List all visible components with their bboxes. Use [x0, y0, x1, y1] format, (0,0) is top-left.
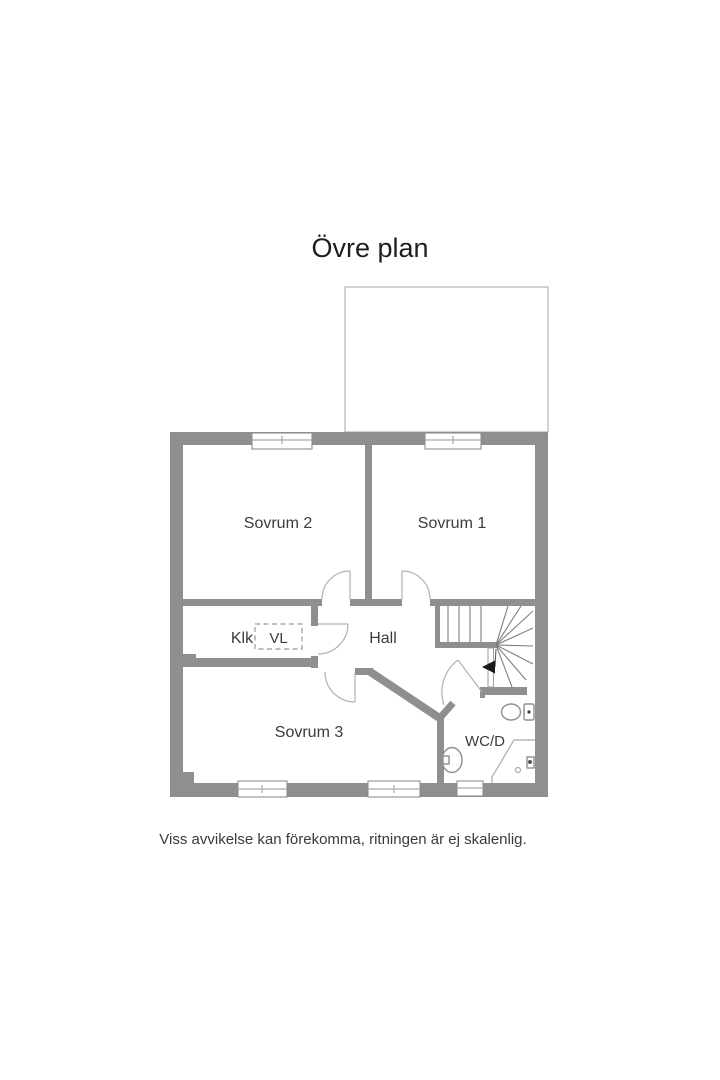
wall-stairs-bottom [435, 642, 498, 648]
wall-mid-left [183, 599, 322, 606]
wall-pilaster-left-bottom [183, 772, 194, 783]
doors [318, 571, 482, 705]
stairs-direction-line [495, 649, 496, 667]
wall-klk-right-upper [311, 606, 318, 626]
outer-wall-top [170, 432, 548, 445]
wall-diagonal [369, 671, 441, 719]
window-top-right [425, 433, 481, 449]
wall-bedroom-divider [365, 445, 372, 603]
windows [238, 433, 483, 797]
door-sovrum3 [325, 672, 355, 702]
label-sovrum2: Sovrum 2 [244, 515, 313, 532]
wall-klk-bottom [183, 658, 318, 667]
door-wc [442, 660, 482, 705]
window-top-left [252, 433, 312, 449]
wall-mid-right [430, 599, 535, 606]
wall-stairs-left [435, 606, 440, 648]
window-bottom-left [238, 781, 287, 797]
wall-wc-top [480, 687, 527, 695]
disclaimer-text: Viss avvikelse kan förekomma, ritningen … [159, 831, 526, 848]
door-sovrum2 [322, 571, 350, 599]
sink-icon [442, 748, 462, 773]
label-wcd: WC/D [465, 733, 505, 750]
outer-wall-left [170, 432, 183, 797]
outer-wall-right [535, 432, 548, 797]
balcony-outline [345, 287, 548, 432]
wall-wc-top-stub [480, 687, 485, 698]
window-bottom-center [368, 781, 420, 797]
label-sovrum3: Sovrum 3 [275, 724, 344, 741]
door-sovrum1 [402, 571, 430, 599]
wall-wc-left [437, 714, 444, 783]
door-klk [318, 624, 348, 654]
label-hall: Hall [369, 630, 397, 647]
window-bottom-wc [457, 781, 483, 796]
plan-title: Övre plan [311, 233, 428, 263]
toilet-icon [502, 704, 535, 720]
label-vl: VL [269, 630, 287, 647]
wall-mid-center [350, 599, 402, 606]
outer-wall-bottom [170, 783, 548, 797]
label-sovrum1: Sovrum 1 [418, 515, 487, 532]
floor-plan: Övre plan Sovrum 2 Sovrum 1 Klk VL Hall … [0, 0, 720, 1080]
label-klk: Klk [231, 630, 254, 647]
